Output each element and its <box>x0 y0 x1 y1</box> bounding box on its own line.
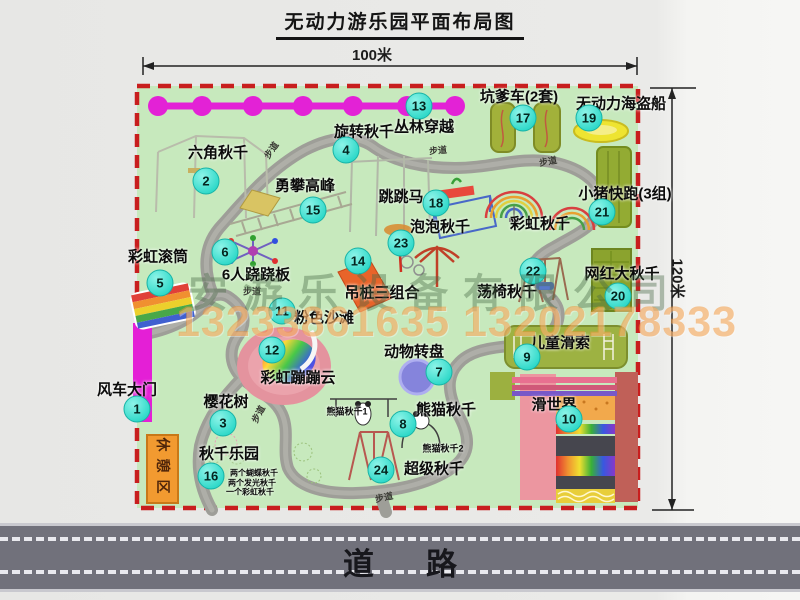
facility-label-18: 跳跳马 <box>378 186 423 207</box>
facility-label-15: 勇攀高峰 <box>275 175 335 196</box>
facility-label-13: 丛林穿越 <box>394 116 454 137</box>
facility-label-24: 超级秋千 <box>404 458 464 479</box>
facility-badge-19: 19 <box>576 105 603 132</box>
facility-badge-17: 17 <box>510 105 537 132</box>
rest-area: 休憩区 <box>146 434 179 504</box>
facility-label-11: 粉色沙滩 <box>294 307 354 328</box>
park-layout-plan: 无动力游乐园平面布局图 100米 120米 <box>0 0 800 600</box>
facility-label-17: 坑爹车(2套) <box>480 86 558 107</box>
facility-label-20: 网红大秋千 <box>584 263 659 284</box>
rest-area-label: 休憩区 <box>153 438 173 501</box>
walkway-label: 步道 <box>428 143 447 158</box>
facility-badge-9: 9 <box>514 344 541 371</box>
facility-label-12: 彩虹蹦蹦云 <box>260 367 335 388</box>
facility-badge-14: 14 <box>345 248 372 275</box>
facility-label-1: 风车大门 <box>97 379 157 400</box>
facility-label-9: 儿童滑索 <box>530 332 590 353</box>
height-dimension-label: 120米 <box>668 258 689 298</box>
facility-badge-10: 10 <box>556 406 583 433</box>
facility-badge-4: 4 <box>333 137 360 164</box>
facility-badge-2: 2 <box>193 168 220 195</box>
facility-label-2: 六角秋千 <box>188 142 248 163</box>
facility-note-5: 一个彩虹秋千 <box>226 487 274 498</box>
facility-badge-3: 3 <box>210 410 237 437</box>
walkway-label: 步道 <box>243 285 261 298</box>
facility-label-14: 吊桩三组合 <box>344 282 419 303</box>
facility-badge-23: 23 <box>388 230 415 257</box>
facility-badge-12: 12 <box>259 337 286 364</box>
facility-label-5: 彩虹滚筒 <box>128 246 188 267</box>
facility-note-0: 彩虹秋千 <box>510 213 570 234</box>
facility-label-16: 秋千乐园 <box>199 443 259 464</box>
facility-label-8: 熊猫秋千 <box>416 399 476 420</box>
facility-badge-18: 18 <box>423 190 450 217</box>
facility-badge-21: 21 <box>589 199 616 226</box>
facility-badge-24: 24 <box>368 457 395 484</box>
facility-badge-22: 22 <box>520 258 547 285</box>
facility-badge-8: 8 <box>390 411 417 438</box>
facility-note-1: 熊猫秋千1 <box>326 405 367 418</box>
facility-badge-5: 5 <box>147 270 174 297</box>
facility-badge-11: 11 <box>269 298 296 325</box>
facility-label-6: 6人跷跷板 <box>222 264 290 285</box>
facility-badge-15: 15 <box>300 197 327 224</box>
facility-badge-7: 7 <box>426 359 453 386</box>
facility-label-21: 小猪快跑(3组) <box>578 183 671 204</box>
facility-badge-20: 20 <box>605 283 632 310</box>
page-title-text: 无动力游乐园平面布局图 <box>276 7 523 40</box>
facility-note-2: 熊猫秋千2 <box>422 442 463 455</box>
width-dimension-label: 100米 <box>352 44 392 65</box>
facility-label-23: 泡泡秋千 <box>410 216 470 237</box>
facility-badge-6: 6 <box>212 239 239 266</box>
facility-badge-13: 13 <box>406 93 433 120</box>
page-title: 无动力游乐园平面布局图 <box>0 7 800 40</box>
facility-badge-16: 16 <box>198 463 225 490</box>
facility-badge-1: 1 <box>124 396 151 423</box>
facility-label-3: 樱花树 <box>203 391 248 412</box>
